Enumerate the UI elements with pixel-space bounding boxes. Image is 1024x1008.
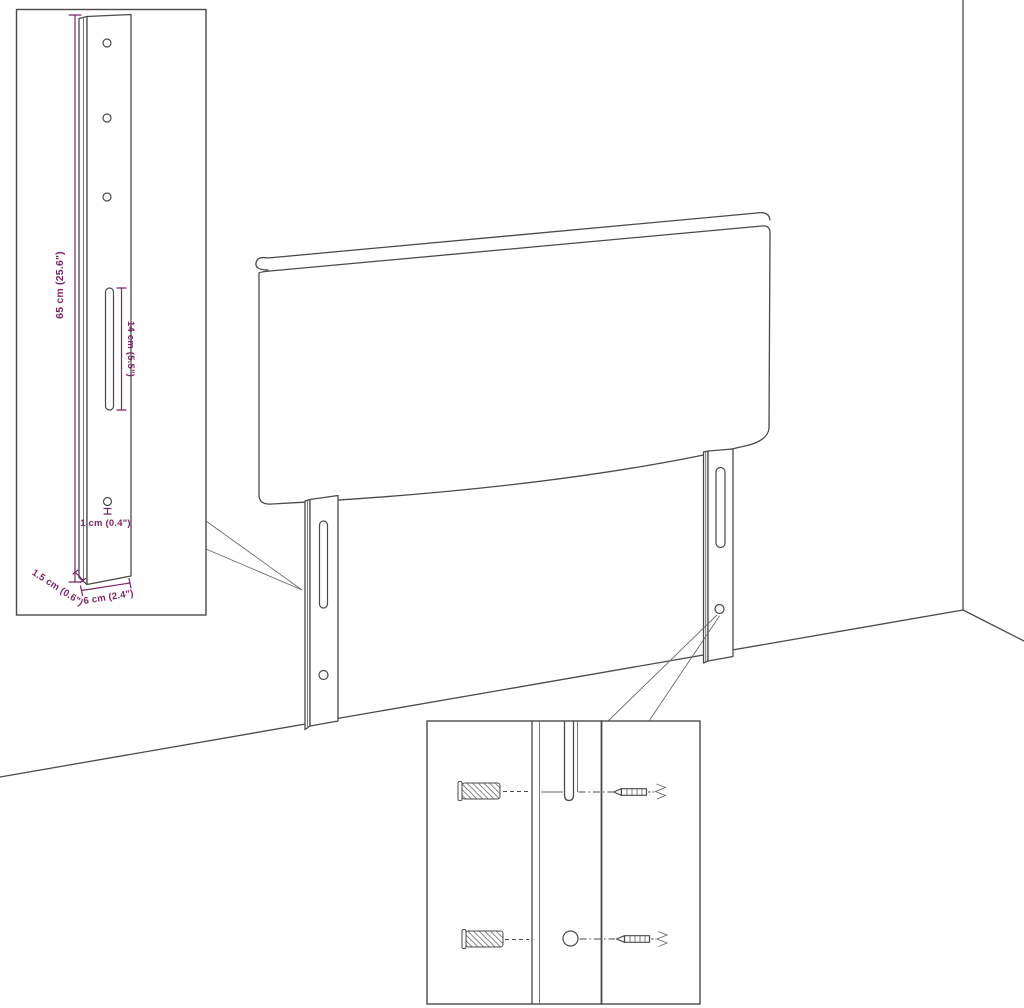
- mounting-leg-left: [305, 496, 338, 730]
- headboard-diagram: 65 cm (25.6") 14 cm (5.5") 1 cm (0.4") 1…: [0, 0, 1024, 1008]
- slot-length-label: 14 cm (5.5"): [125, 321, 136, 377]
- bracket-side-face: [79, 17, 87, 585]
- bracket-hole-2: [103, 114, 111, 122]
- left-leg-slot: [320, 521, 328, 608]
- right-leg-hole: [715, 605, 724, 614]
- callout-lines-right: [608, 615, 720, 721]
- leg-height-label: 65 cm (25.6"): [54, 251, 66, 319]
- right-leg-slot: [716, 468, 725, 548]
- mounting-leg-right: [704, 449, 734, 663]
- fastener-detail-inset: [427, 721, 700, 1004]
- leg-dimension-inset: 65 cm (25.6") 14 cm (5.5") 1 cm (0.4") 1…: [17, 10, 207, 616]
- callout-lines-left: [206, 521, 302, 590]
- floor-line-right: [963, 610, 1024, 641]
- bracket-slot: [106, 288, 114, 410]
- wall-plug-icon: [462, 783, 500, 799]
- bracket-small-hole: [104, 498, 112, 506]
- hole-diameter-label: 1 cm (0.4"): [80, 518, 131, 529]
- headboard-panel: [256, 213, 770, 504]
- hole-closeup: [563, 931, 578, 946]
- wall-plug-collar-icon: [458, 782, 462, 801]
- wall-plug-collar-icon: [462, 930, 466, 949]
- bracket-hole-1: [103, 39, 111, 47]
- inset-frame-bottom: [427, 721, 700, 1004]
- headboard-front-face: [259, 226, 770, 504]
- left-leg-hole: [319, 671, 328, 680]
- bracket-hole-3: [103, 193, 111, 201]
- wall-plug-icon: [466, 931, 503, 947]
- diagram-canvas: 65 cm (25.6") 14 cm (5.5") 1 cm (0.4") 1…: [0, 0, 1024, 1008]
